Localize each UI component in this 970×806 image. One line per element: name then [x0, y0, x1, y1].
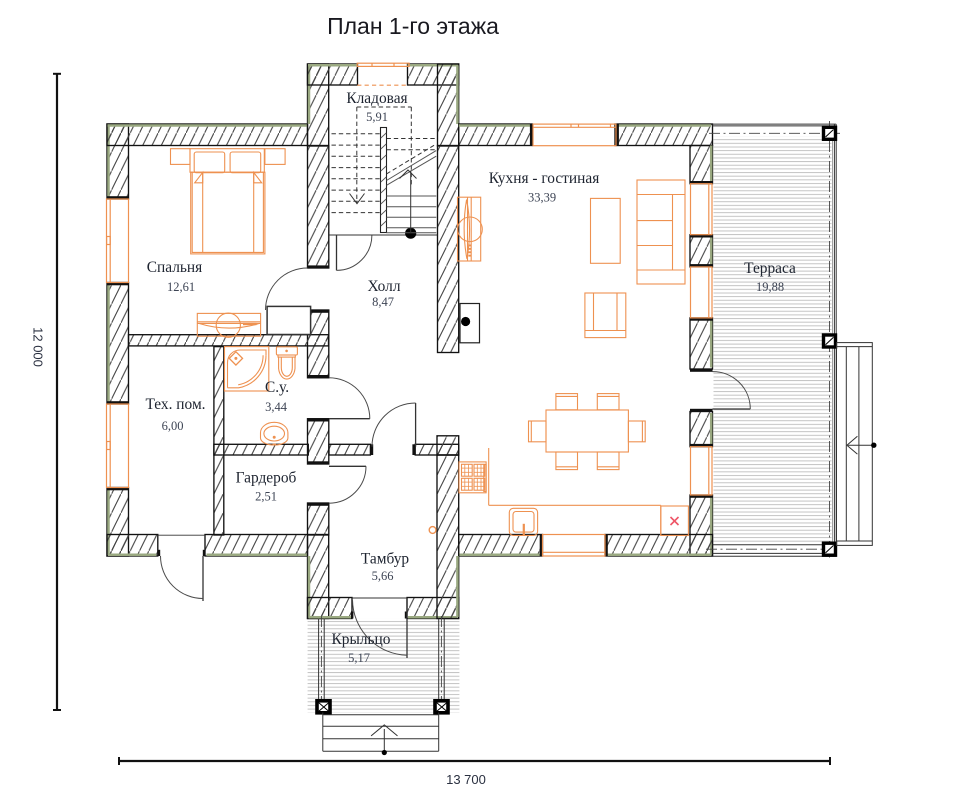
- svg-text:Тех. пом.: Тех. пом.: [145, 396, 205, 413]
- svg-text:План 1-го этажа: План 1-го этажа: [327, 13, 499, 39]
- svg-text:Крыльцо: Крыльцо: [332, 631, 391, 648]
- svg-text:12,61: 12,61: [167, 280, 195, 294]
- svg-text:33,39: 33,39: [528, 191, 556, 205]
- svg-text:Терраса: Терраса: [744, 260, 796, 277]
- svg-text:3,44: 3,44: [265, 400, 288, 414]
- svg-text:6,00: 6,00: [162, 419, 184, 433]
- svg-text:Кухня - гостиная: Кухня - гостиная: [489, 170, 600, 187]
- svg-text:13 700: 13 700: [446, 772, 486, 787]
- svg-text:19,88: 19,88: [756, 280, 784, 294]
- svg-text:Тамбур: Тамбур: [361, 551, 410, 568]
- svg-text:Гардероб: Гардероб: [236, 470, 297, 487]
- svg-text:Спальня: Спальня: [147, 259, 202, 276]
- svg-text:Холл: Холл: [368, 278, 401, 295]
- svg-text:8,47: 8,47: [372, 295, 394, 309]
- svg-text:5,66: 5,66: [372, 569, 394, 583]
- svg-text:2,51: 2,51: [255, 490, 277, 504]
- svg-text:5,17: 5,17: [348, 651, 370, 665]
- svg-text:С.у.: С.у.: [265, 379, 289, 396]
- svg-text:Кладовая: Кладовая: [346, 90, 407, 107]
- svg-text:5,91: 5,91: [366, 110, 388, 124]
- svg-text:12 000: 12 000: [31, 327, 46, 367]
